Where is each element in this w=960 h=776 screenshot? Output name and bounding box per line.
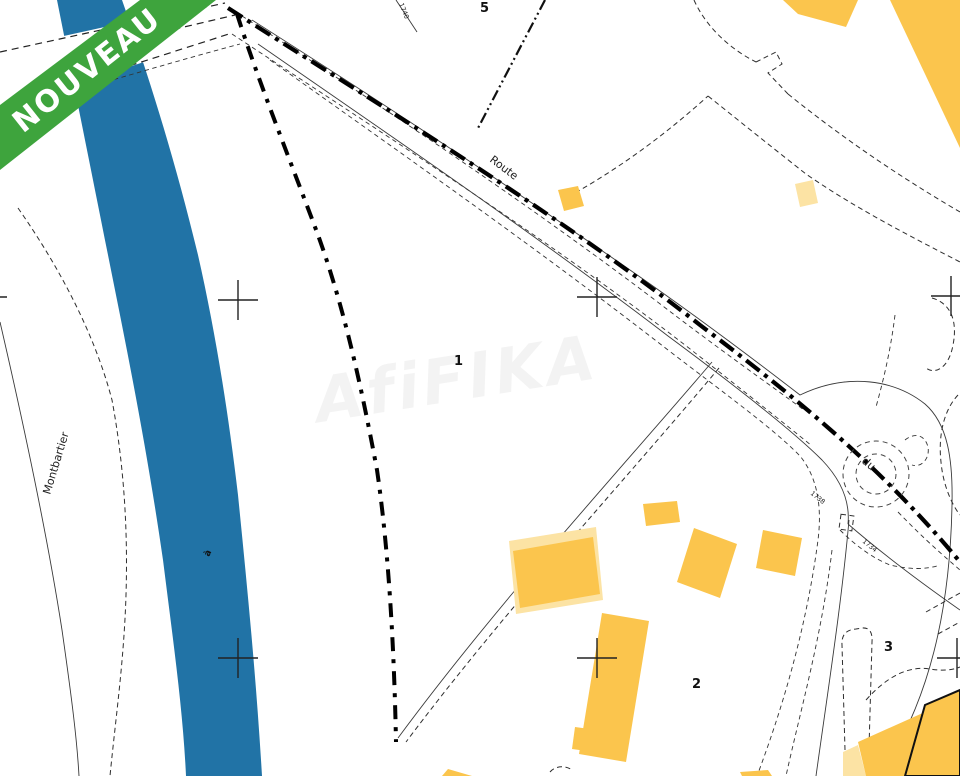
survey-cross: [218, 280, 258, 320]
cadastral-map-canvas[interactable]: AfiFIKA Route du Montbartier à 5 1 2 3 1…: [0, 0, 960, 776]
roundabout-sw-dashed-arc: [840, 530, 940, 569]
utility-dashed-box: [839, 514, 854, 531]
building-light-small: [795, 180, 818, 207]
survey-cross: [0, 277, 7, 317]
roundabout-approach-dashed: [876, 315, 895, 407]
contour-line-left: [0, 322, 79, 776]
buildings-light: [509, 180, 866, 776]
survey-cross: [937, 638, 960, 678]
building-mid-2: [677, 528, 737, 598]
building-bottom-sliver-2: [740, 770, 772, 776]
building-top-corner: [890, 0, 960, 148]
parcel-line-tr-bump: [756, 52, 788, 94]
building-bottom-sliver-1: [442, 769, 472, 776]
lot-number-1734: 1734: [861, 537, 879, 554]
commune-name-label: Montbartier: [40, 430, 71, 496]
parcel-line-tr-1: [694, 0, 756, 62]
building-roadside-small: [558, 186, 584, 211]
survey-cross: [931, 276, 960, 316]
survey-cross: [577, 277, 617, 317]
parcel-number-3: 3: [884, 640, 893, 655]
parcel-line-tr-4: [708, 96, 960, 262]
parcel-divider-line: [816, 520, 849, 776]
roundabout-spur-dashed: [905, 436, 928, 466]
right-loop-dashed-2: [940, 395, 960, 515]
road-name-label: Route: [487, 153, 521, 183]
parcel-number-2: 2: [692, 677, 701, 692]
parcel-line-br-diag-2: [938, 622, 960, 634]
parcel-number-1: 1: [454, 354, 463, 369]
parcel-line-tr-3: [568, 96, 708, 197]
building-mid-3: [756, 530, 802, 576]
building-mid-1: [643, 501, 680, 526]
commune-boundary-road: [228, 8, 960, 562]
parcel-number-5: 5: [480, 1, 489, 16]
parcel-line-bottom-tick: [550, 767, 572, 772]
building-tall-annex: [572, 727, 597, 752]
road-se-edge: [848, 524, 960, 610]
parcel-line-left: [18, 208, 126, 776]
lot-number-1738: 1738: [809, 489, 827, 506]
section-limit-line: [477, 0, 545, 130]
lot-number-1740: 1740: [397, 2, 411, 20]
parcel-line-br-loop: [842, 628, 872, 750]
right-loop-dashed-1: [926, 298, 954, 371]
river: [57, 0, 262, 776]
building-top: [783, 0, 858, 27]
road-sw-edge: [258, 44, 848, 524]
access-lane-dashed: [786, 550, 832, 776]
